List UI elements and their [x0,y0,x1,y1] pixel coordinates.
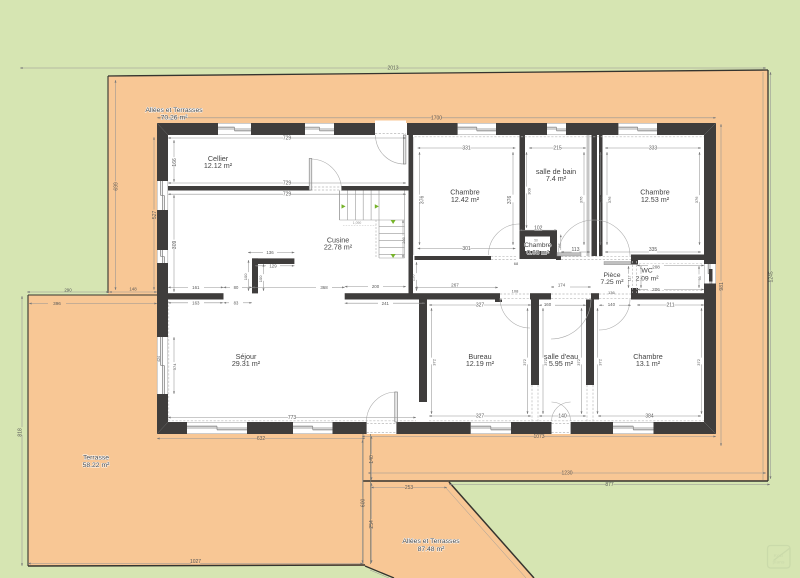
svg-text:70.26 m²: 70.26 m² [161,114,189,121]
svg-text:374: 374 [172,363,177,370]
svg-text:7.25 m²: 7.25 m² [600,279,624,286]
svg-text:818: 818 [18,428,24,437]
svg-text:335: 335 [649,247,658,253]
svg-text:309: 309 [526,187,531,194]
svg-text:424: 424 [157,356,161,362]
svg-text:12.19 m²: 12.19 m² [466,359,495,368]
svg-text:600: 600 [360,499,366,508]
svg-text:376: 376 [607,196,612,203]
svg-text:1027: 1027 [190,559,201,565]
svg-text:129: 129 [269,263,277,268]
svg-text:372: 372 [431,358,436,365]
svg-text:368: 368 [320,285,328,290]
svg-text:12.42 m²: 12.42 m² [451,195,480,204]
svg-text:372: 372 [522,358,527,365]
svg-text:1073: 1073 [533,434,544,440]
svg-text:327: 327 [476,303,485,309]
svg-text:396: 396 [53,301,61,306]
svg-text:2013: 2013 [387,66,398,72]
svg-text:83: 83 [234,300,239,305]
svg-text:117: 117 [627,276,631,282]
svg-text:150: 150 [410,274,415,281]
svg-text:22.78 m²: 22.78 m² [324,242,353,251]
svg-text:309: 309 [172,241,178,250]
svg-text:527: 527 [152,211,158,220]
svg-text:140: 140 [608,302,616,307]
svg-text:93: 93 [698,276,702,280]
svg-text:148: 148 [129,287,137,292]
svg-text:12.12 m²: 12.12 m² [204,161,233,170]
svg-text:2.09 m²: 2.09 m² [635,276,659,283]
svg-text:Allées et Terrasses: Allées et Terrasses [402,538,460,545]
svg-text:376: 376 [507,196,513,205]
svg-text:87.48 m²: 87.48 m² [418,546,446,553]
svg-text:376: 376 [578,196,583,203]
svg-text:0.68 m²: 0.68 m² [527,250,550,257]
svg-text:113: 113 [572,247,580,253]
svg-text:773: 773 [288,415,297,421]
svg-text:102: 102 [534,225,543,231]
svg-text:12.53 m²: 12.53 m² [641,195,670,204]
svg-text:5.95 m²: 5.95 m² [549,359,574,368]
svg-text:161: 161 [192,285,200,290]
svg-text:376: 376 [598,196,603,203]
svg-text:384: 384 [645,414,654,420]
svg-text:209: 209 [402,237,406,243]
svg-text:136: 136 [608,290,615,295]
svg-text:254: 254 [369,520,375,529]
svg-text:174: 174 [558,283,566,288]
svg-text:877: 877 [605,482,614,488]
svg-text:136: 136 [266,250,274,255]
svg-text:13.1 m²: 13.1 m² [636,359,661,368]
svg-text:211: 211 [667,303,675,309]
svg-text:267: 267 [451,282,459,287]
svg-text:729: 729 [283,192,292,198]
svg-text:163: 163 [192,300,200,305]
svg-text:215: 215 [553,146,562,152]
svg-text:372: 372 [696,358,701,365]
svg-text:200: 200 [372,284,380,289]
svg-text:206: 206 [652,287,660,292]
svg-text:301: 301 [462,246,471,252]
svg-text:333: 333 [649,146,658,152]
svg-text:372: 372 [597,358,602,365]
svg-text:58.22 m²: 58.22 m² [83,462,111,469]
svg-text:1700: 1700 [431,115,442,121]
svg-text:327: 327 [476,414,485,420]
svg-text:Chambre: Chambre [524,242,551,249]
svg-text:166: 166 [172,158,178,167]
svg-text:241: 241 [382,301,390,306]
svg-text:729: 729 [283,181,292,187]
svg-text:Allées et Terrasses: Allées et Terrasses [145,107,203,114]
svg-text:160: 160 [544,302,552,307]
svg-text:140: 140 [558,414,567,420]
svg-text:699: 699 [113,182,119,191]
svg-text:108: 108 [512,289,519,294]
svg-text:67: 67 [558,244,562,248]
svg-text:68: 68 [514,261,519,266]
svg-text:80: 80 [234,285,239,290]
svg-text:7.4 m²: 7.4 m² [546,174,567,183]
svg-text:140: 140 [369,455,375,464]
svg-text:376: 376 [420,196,426,205]
svg-text:100: 100 [258,275,263,282]
svg-text:Terrasse: Terrasse [83,455,109,462]
svg-text:1,090: 1,090 [353,221,362,225]
svg-text:981: 981 [719,282,725,291]
svg-text:331: 331 [462,146,471,152]
svg-text:1230: 1230 [561,471,572,477]
svg-text:208: 208 [652,264,660,269]
svg-text:1245: 1245 [768,271,774,282]
svg-text:632: 632 [257,436,266,442]
svg-text:253: 253 [405,485,414,491]
svg-text:100: 100 [243,273,248,280]
svg-text:729: 729 [283,136,292,142]
svg-text:376: 376 [694,196,699,203]
svg-text:WC: WC [641,268,652,275]
svg-text:29.31 m²: 29.31 m² [232,359,261,368]
svg-text:290: 290 [64,288,72,293]
